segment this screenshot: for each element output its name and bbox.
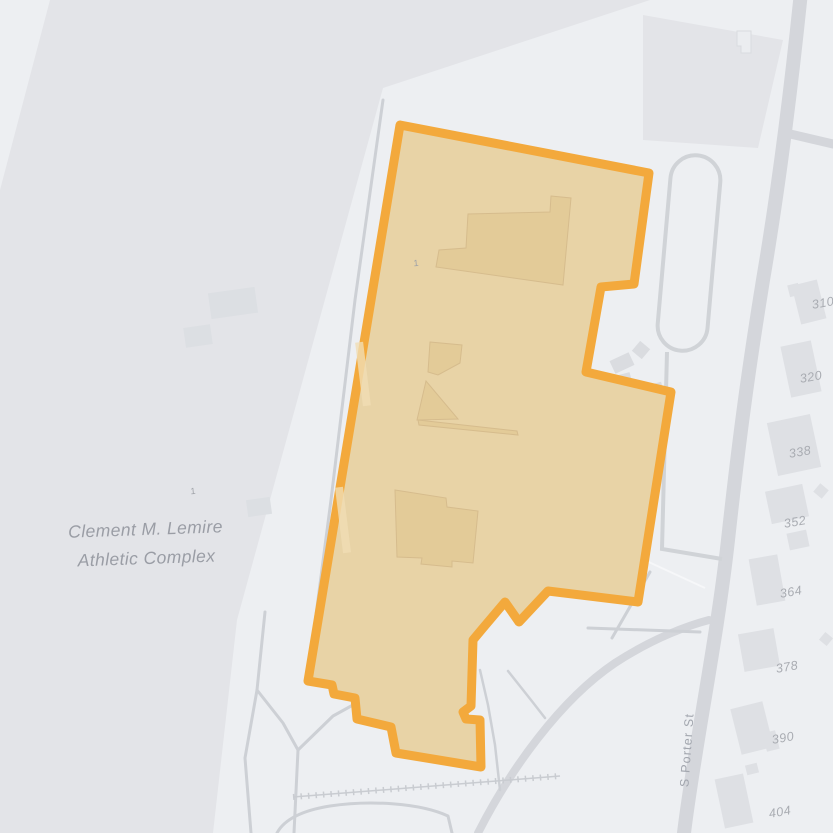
- west-building: [246, 497, 272, 517]
- west-building: [183, 324, 213, 348]
- map-vector-layer: [0, 0, 833, 833]
- house-378: [738, 628, 780, 672]
- map-canvas[interactable]: Clement M. Lemire Athletic Complex S Por…: [0, 0, 833, 833]
